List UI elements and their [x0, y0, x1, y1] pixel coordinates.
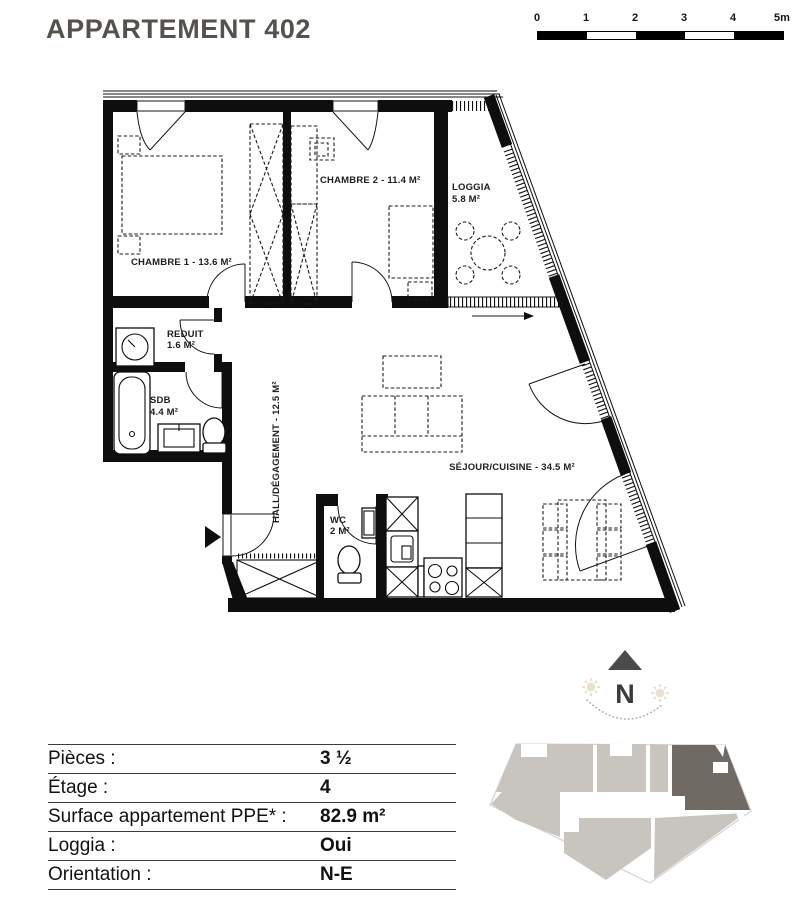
coffee-table — [383, 356, 441, 388]
info-row-surface: Surface appartement PPE* : 82.9 m² — [48, 802, 456, 831]
loggia-table-chairs — [456, 222, 520, 284]
label-loggia: LOGGIA — [452, 182, 491, 193]
entrance-arrow-icon — [205, 526, 221, 548]
label-sdb: SDB — [150, 395, 171, 406]
label-chambre1: CHAMBRE 1 - 13.6 M² — [131, 257, 232, 268]
building-location-map — [483, 733, 773, 902]
bed-chambre2 — [310, 138, 433, 300]
info-label: Surface appartement PPE* : — [48, 806, 320, 828]
entry-closet — [237, 560, 322, 598]
sun-icon — [651, 684, 669, 702]
label-reduit: REDUIT — [167, 329, 204, 340]
label-wc: WC — [330, 515, 346, 526]
label-hall: HALL/DÉGAGEMENT - 12.5 M² — [271, 381, 282, 523]
sun-icon — [582, 678, 600, 696]
info-value: N-E — [320, 864, 353, 886]
toilet-sdb — [203, 418, 226, 453]
info-label: Orientation : — [48, 864, 320, 886]
room-labels: CHAMBRE 1 - 13.6 M² CHAMBRE 2 - 11.4 M² … — [131, 175, 575, 537]
info-label: Étage : — [48, 777, 320, 799]
bathtub — [114, 372, 150, 454]
sofa — [362, 396, 462, 452]
label-sdb-area: 4.4 M² — [150, 407, 178, 418]
toilet-wc — [338, 546, 361, 583]
north-arrow-icon — [608, 650, 642, 670]
label-reduit-area: 1.6 M² — [167, 340, 195, 351]
wc-sink — [362, 508, 376, 538]
bathroom-sink — [158, 424, 200, 452]
floor-plan-page: APPARTEMENT 402 0 1 2 3 4 5m — [0, 0, 798, 902]
info-table: Pièces : 3 ½ Étage : 4 Surface apparteme… — [48, 744, 456, 890]
compass: N — [573, 640, 677, 735]
info-row-orientation: Orientation : N-E — [48, 860, 456, 890]
info-value: Oui — [320, 835, 352, 857]
dining-table-chairs — [543, 500, 621, 580]
info-row-etage: Étage : 4 — [48, 773, 456, 802]
bed-chambre1 — [118, 136, 222, 254]
kitchen-units — [386, 494, 502, 597]
floor-plan-drawing: CHAMBRE 1 - 13.6 M² CHAMBRE 2 - 11.4 M² … — [0, 0, 798, 640]
info-value: 82.9 m² — [320, 806, 385, 828]
info-value: 4 — [320, 777, 331, 799]
info-label: Pièces : — [48, 748, 320, 770]
label-loggia-area: 5.8 M² — [452, 194, 480, 205]
label-chambre2: CHAMBRE 2 - 11.4 M² — [320, 175, 420, 186]
info-row-pieces: Pièces : 3 ½ — [48, 744, 456, 773]
washing-machine — [116, 328, 154, 366]
compass-letter: N — [615, 679, 635, 709]
info-row-loggia: Loggia : Oui — [48, 831, 456, 860]
label-sejour: SÉJOUR/CUISINE - 34.5 M² — [449, 462, 575, 473]
info-label: Loggia : — [48, 835, 320, 857]
label-wc-area: 2 M² — [330, 526, 350, 537]
sliding-door-arrow — [472, 312, 534, 320]
info-value: 3 ½ — [320, 748, 352, 770]
